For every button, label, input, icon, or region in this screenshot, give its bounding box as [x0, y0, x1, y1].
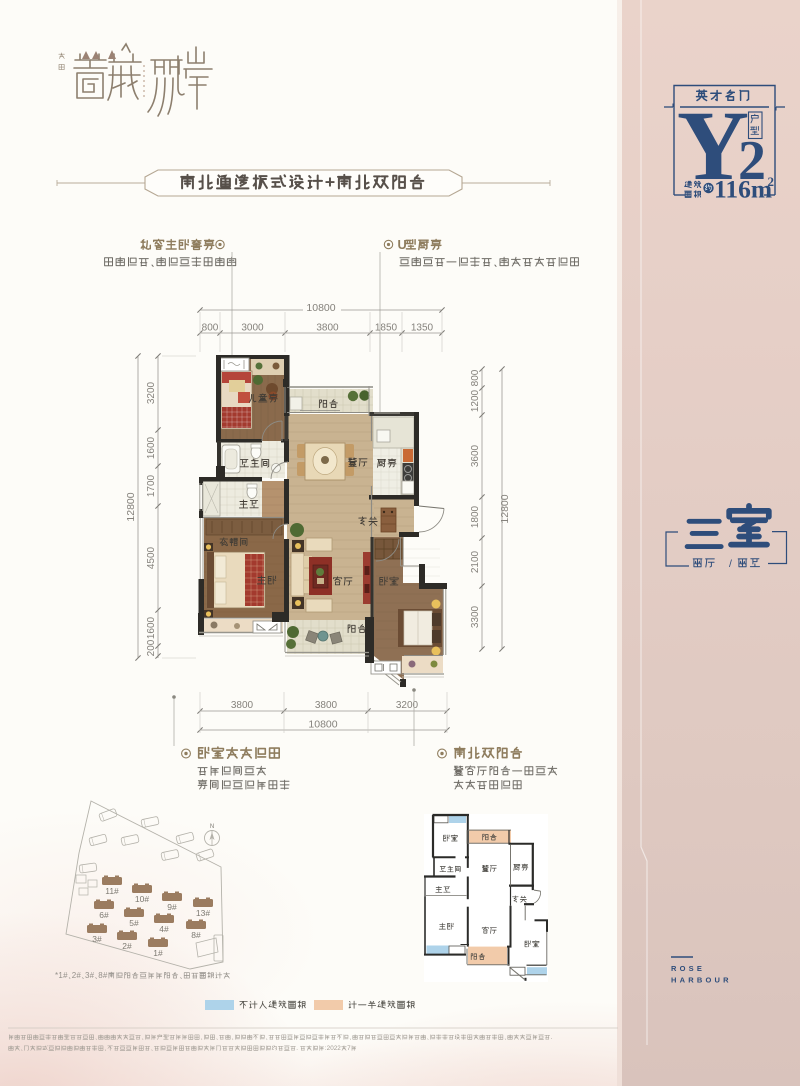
- svg-text:116m: 116m: [714, 175, 772, 204]
- svg-text:ROSE: ROSE: [671, 964, 705, 973]
- svg-text:#: #: [103, 971, 108, 980]
- svg-text:10#: 10#: [135, 894, 149, 904]
- svg-text:3800: 3800: [231, 700, 254, 711]
- svg-text:#: #: [63, 971, 68, 980]
- svg-text:1#: 1#: [153, 948, 163, 958]
- svg-text:.: .: [551, 1034, 553, 1041]
- svg-text:2#: 2#: [122, 941, 132, 951]
- svg-text:3800: 3800: [315, 700, 338, 711]
- svg-text:#: #: [76, 971, 81, 980]
- svg-text:12800: 12800: [125, 492, 137, 521]
- svg-text:HARBOUR: HARBOUR: [671, 976, 732, 985]
- svg-text:3000: 3000: [241, 323, 264, 334]
- svg-text:12800: 12800: [499, 494, 511, 523]
- svg-text:1850: 1850: [375, 323, 398, 334]
- svg-text:2: 2: [768, 174, 775, 189]
- svg-text:800: 800: [202, 323, 219, 334]
- svg-text:1600: 1600: [146, 436, 157, 459]
- svg-text:4#: 4#: [159, 924, 169, 934]
- svg-text:3300: 3300: [470, 605, 481, 628]
- svg-text:2: 2: [337, 1045, 341, 1052]
- svg-text:800: 800: [470, 369, 481, 386]
- svg-text:13#: 13#: [196, 908, 210, 918]
- svg-text:/: /: [729, 558, 732, 570]
- svg-text:10800: 10800: [308, 719, 337, 731]
- svg-text:8#: 8#: [191, 930, 201, 940]
- svg-text:3#: 3#: [92, 934, 102, 944]
- svg-text:7: 7: [347, 1045, 351, 1052]
- svg-text:3800: 3800: [316, 323, 339, 334]
- svg-text:N: N: [210, 824, 214, 830]
- svg-text:1600: 1600: [146, 616, 157, 639]
- svg-text:200: 200: [146, 639, 157, 656]
- svg-text:6#: 6#: [99, 910, 109, 920]
- svg-text:1350: 1350: [411, 323, 434, 334]
- svg-text:1700: 1700: [146, 474, 157, 497]
- svg-text:U: U: [398, 237, 407, 252]
- svg-text:5#: 5#: [129, 918, 139, 928]
- svg-text:.: .: [296, 1045, 298, 1052]
- svg-text:1800: 1800: [470, 505, 481, 528]
- svg-text:+: +: [325, 172, 335, 192]
- svg-text:10800: 10800: [306, 302, 335, 314]
- svg-text:9#: 9#: [167, 902, 177, 912]
- svg-text:1200: 1200: [470, 389, 481, 412]
- svg-text:3600: 3600: [470, 444, 481, 467]
- svg-text:11#: 11#: [105, 886, 119, 896]
- svg-text:3200: 3200: [146, 381, 157, 404]
- svg-text:4500: 4500: [146, 546, 157, 569]
- svg-text:2100: 2100: [470, 550, 481, 573]
- svg-text:#: #: [90, 971, 95, 980]
- svg-text:3200: 3200: [396, 700, 419, 711]
